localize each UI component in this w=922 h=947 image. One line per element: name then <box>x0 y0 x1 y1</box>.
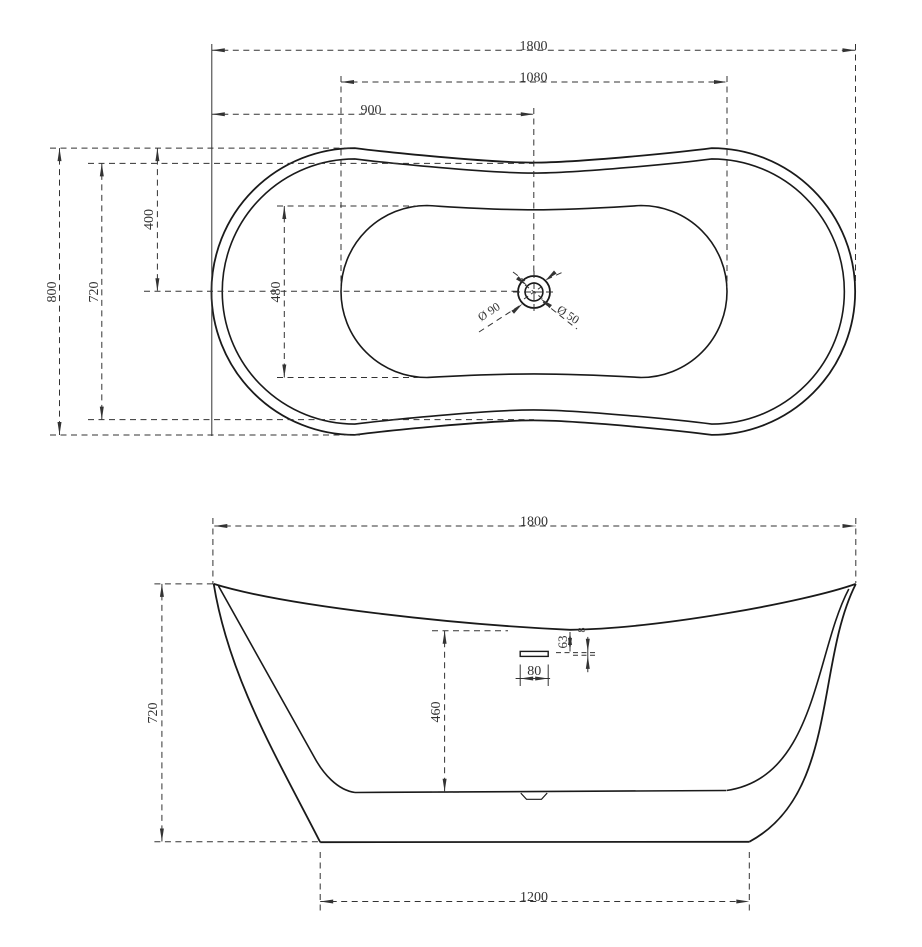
svg-text:Ø 50: Ø 50 <box>554 302 581 327</box>
svg-text:480: 480 <box>269 282 284 303</box>
svg-text:460: 460 <box>429 702 444 723</box>
svg-text:720: 720 <box>87 282 102 303</box>
svg-text:1080: 1080 <box>520 71 548 86</box>
svg-text:800: 800 <box>45 282 60 303</box>
svg-text:1800: 1800 <box>520 515 548 530</box>
svg-text:Ø 90: Ø 90 <box>475 299 502 324</box>
svg-text:8: 8 <box>577 628 588 633</box>
svg-text:80: 80 <box>527 664 541 679</box>
svg-text:400: 400 <box>142 209 157 230</box>
svg-text:900: 900 <box>361 103 382 118</box>
svg-text:1200: 1200 <box>520 890 548 905</box>
svg-text:720: 720 <box>146 703 161 724</box>
svg-text:1800: 1800 <box>520 39 548 54</box>
svg-text:63: 63 <box>555 636 570 649</box>
